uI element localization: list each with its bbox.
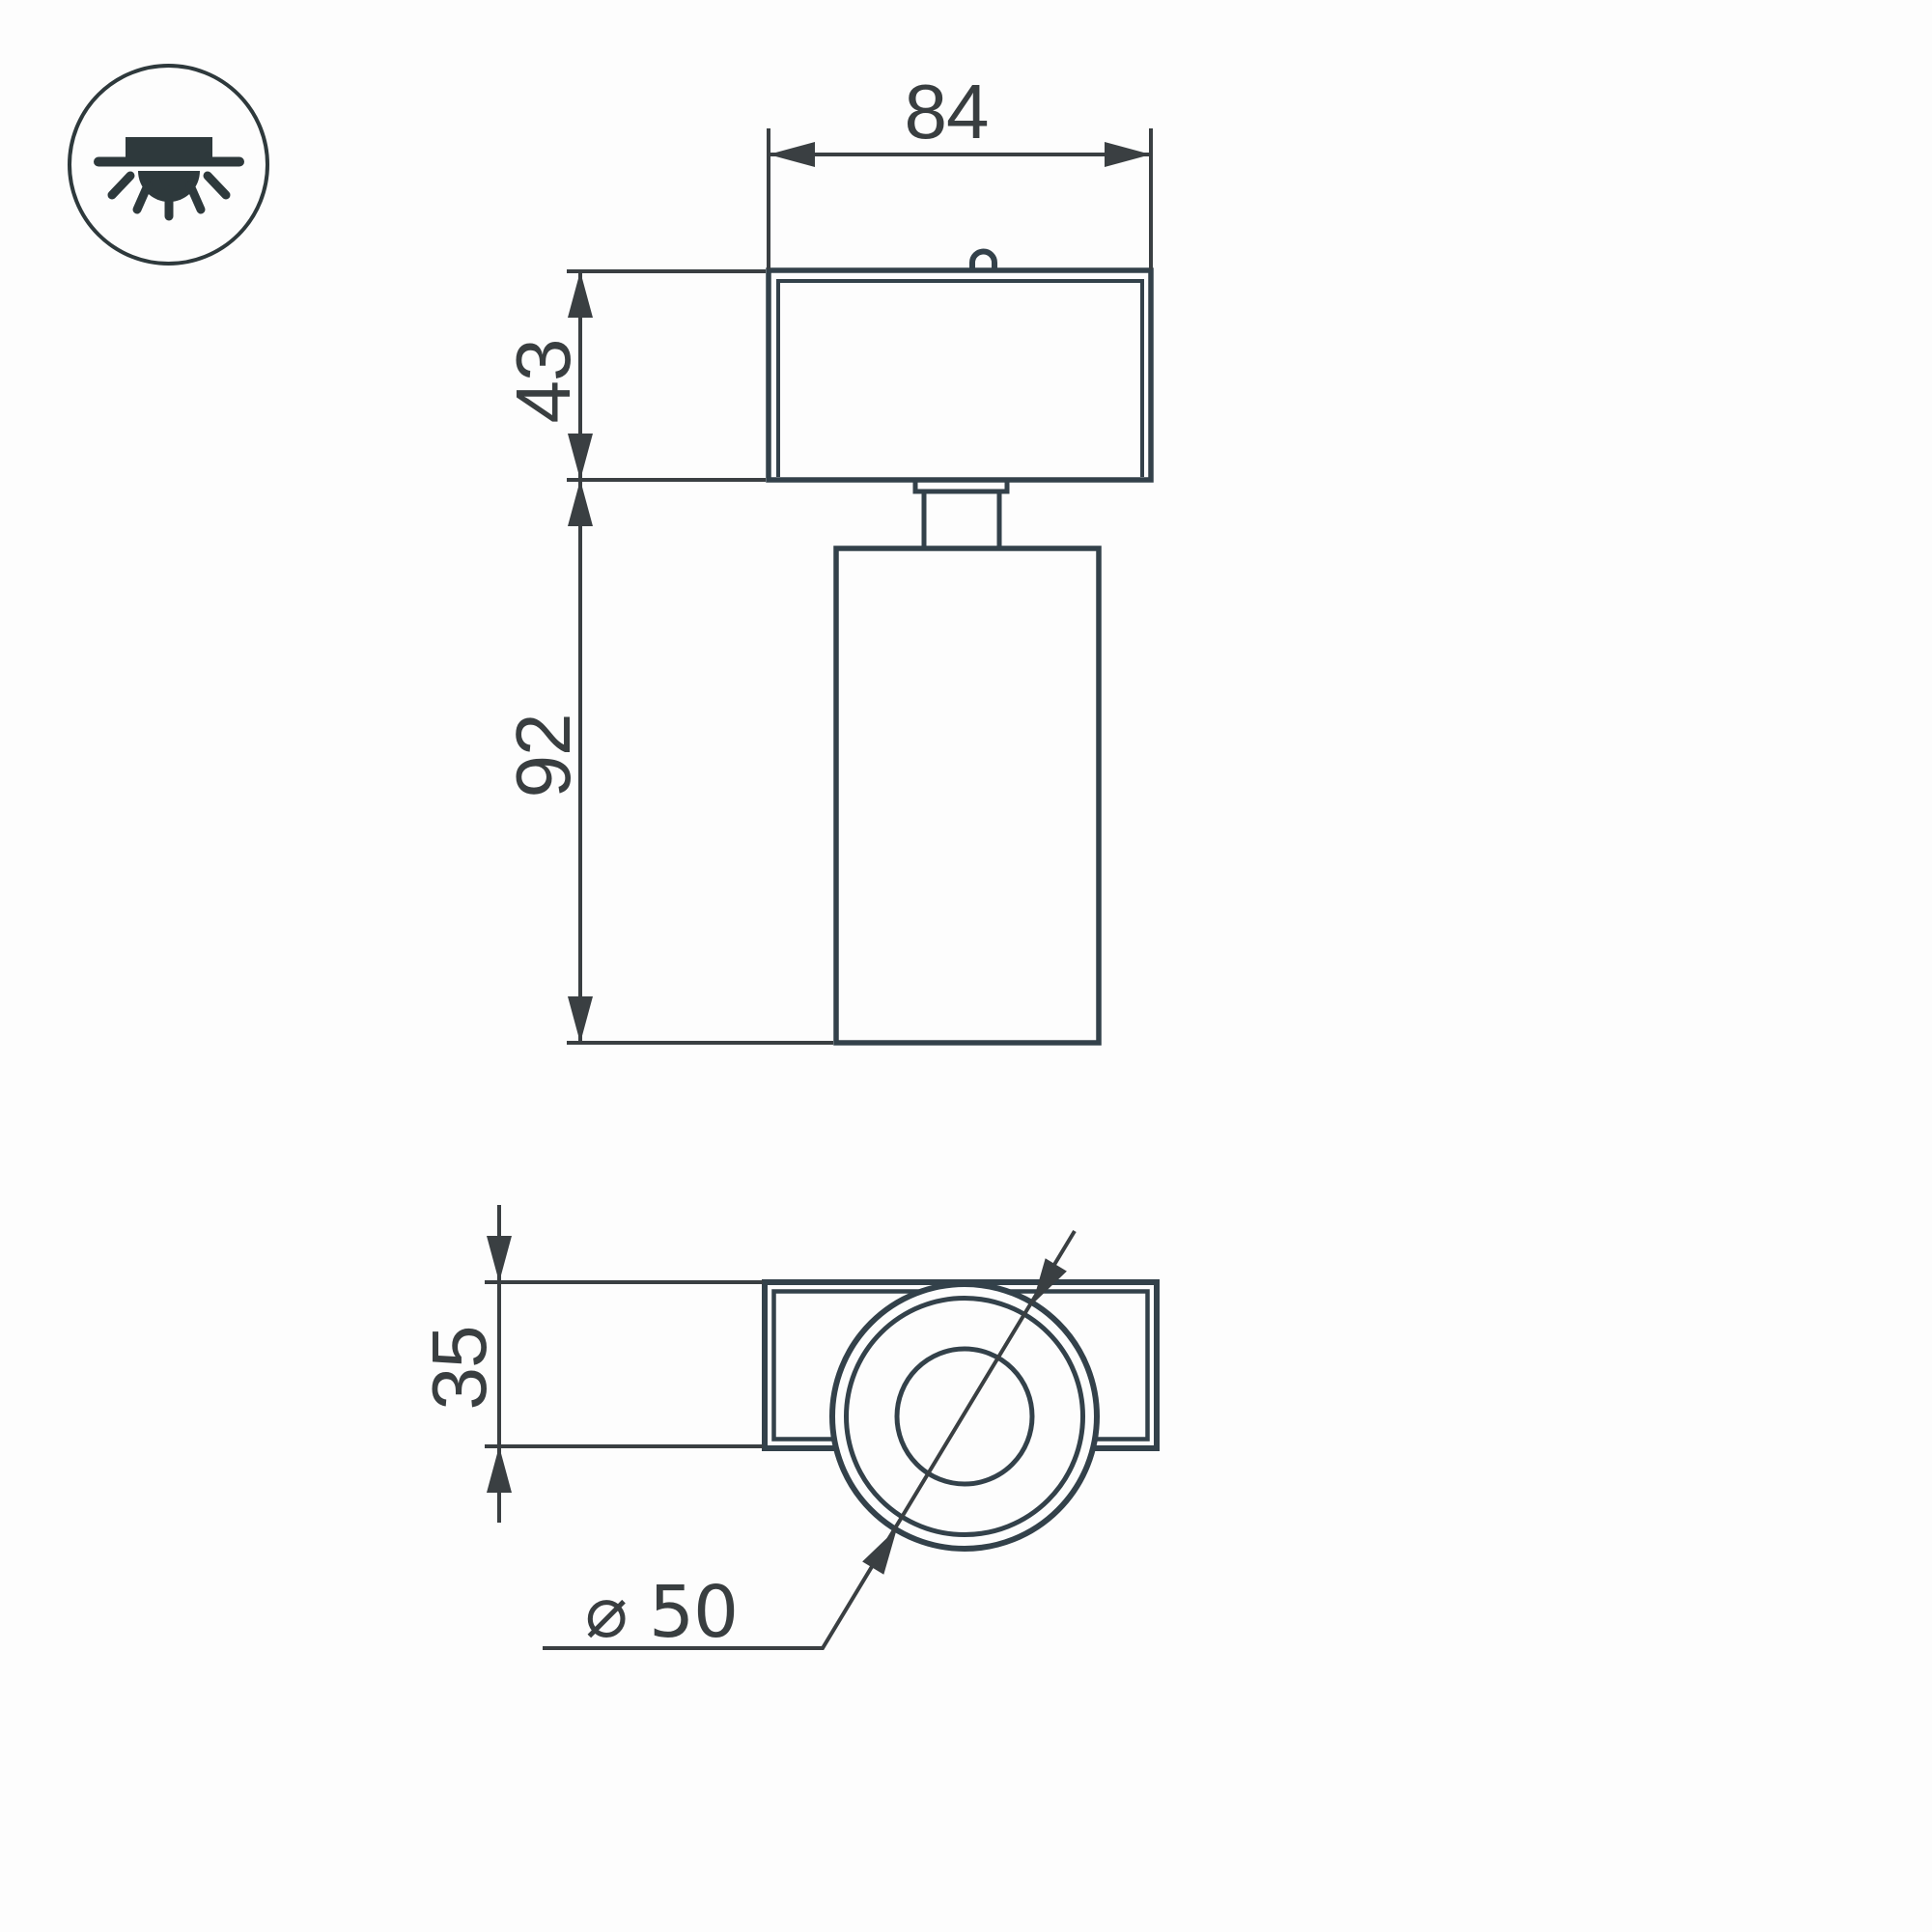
light-ray-icon — [208, 176, 226, 195]
arrowhead — [568, 996, 593, 1043]
arrowhead — [769, 142, 815, 167]
dim-92: 92 — [500, 480, 833, 1043]
bottom-view — [765, 1282, 1157, 1549]
luminaire-dimension-drawing: 84 43 92 — [0, 0, 1932, 1932]
technical-drawing-page: 84 43 92 — [0, 0, 1932, 1932]
arrowhead — [487, 1236, 512, 1282]
recessed-downlight-icon — [70, 66, 267, 264]
dim-diameter-50-label: ⌀ 50 — [585, 1571, 738, 1654]
dim-92-label: 92 — [500, 714, 586, 798]
dim-43: 43 — [500, 271, 766, 480]
swivel-neck — [924, 491, 999, 548]
front-view — [769, 252, 1151, 1044]
arrowhead — [862, 1528, 897, 1575]
track-mount-box-outer — [769, 270, 1151, 480]
light-ray-icon — [190, 185, 201, 210]
arrowhead — [1105, 142, 1151, 167]
arrowhead — [487, 1446, 512, 1493]
dim-43-label: 43 — [500, 340, 586, 424]
arrowhead — [568, 480, 593, 526]
dim-84: 84 — [769, 69, 1151, 269]
dim-35: 35 — [416, 1205, 763, 1523]
light-ray-icon — [137, 185, 148, 210]
dim-84-label: 84 — [905, 69, 989, 154]
front-dimensions: 84 43 92 — [500, 69, 1151, 1043]
track-mount-box-inner — [778, 281, 1142, 477]
dim-35-label: 35 — [416, 1327, 502, 1411]
arrowhead — [568, 434, 593, 480]
light-ray-icon — [112, 176, 130, 195]
arrowhead — [568, 271, 593, 318]
lamp-body — [836, 548, 1099, 1043]
